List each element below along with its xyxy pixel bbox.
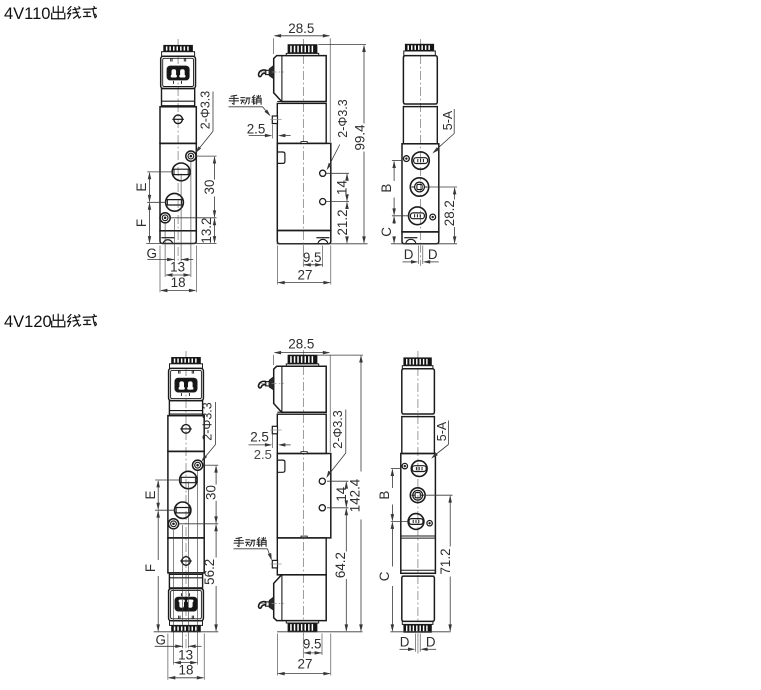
svg-text:B: B (379, 184, 394, 193)
svg-text:9.5: 9.5 (303, 250, 322, 265)
svg-text:4V110: 4V110 (4, 5, 51, 23)
svg-text:30: 30 (202, 180, 217, 195)
svg-text:2.5: 2.5 (250, 430, 269, 445)
svg-text:27: 27 (298, 656, 313, 671)
svg-text:F: F (134, 219, 149, 227)
svg-text:G: G (155, 633, 165, 648)
svg-text:14: 14 (334, 180, 349, 195)
svg-text:C: C (379, 227, 394, 237)
svg-text:D: D (426, 635, 436, 650)
svg-text:56.2: 56.2 (202, 559, 217, 585)
svg-text:30: 30 (204, 485, 219, 500)
svg-text:2-Φ3.3: 2-Φ3.3 (331, 410, 345, 449)
svg-text:142.4: 142.4 (348, 478, 363, 512)
svg-text:4V120: 4V120 (4, 313, 52, 331)
svg-text:99.4: 99.4 (352, 124, 367, 151)
svg-text:2-Φ3.3: 2-Φ3.3 (199, 91, 213, 130)
svg-text:21.2: 21.2 (335, 209, 350, 235)
svg-text:F: F (143, 564, 158, 572)
svg-text:9.5: 9.5 (303, 637, 322, 652)
svg-text:D: D (404, 247, 414, 262)
svg-text:E: E (143, 490, 158, 499)
svg-text:18: 18 (171, 275, 186, 290)
svg-text:5-A: 5-A (435, 421, 449, 441)
svg-text:28.5: 28.5 (288, 337, 314, 352)
svg-text:G: G (146, 246, 156, 261)
svg-text:13: 13 (178, 647, 193, 662)
svg-text:13: 13 (170, 260, 185, 275)
svg-text:28.5: 28.5 (288, 21, 314, 36)
svg-text:5-A: 5-A (441, 110, 455, 130)
svg-text:2-Φ3.3: 2-Φ3.3 (336, 99, 350, 138)
svg-text:E: E (134, 183, 149, 192)
svg-text:D: D (428, 247, 438, 262)
svg-text:2-Φ3.3: 2-Φ3.3 (201, 402, 215, 441)
svg-text:B: B (377, 491, 392, 500)
svg-text:C: C (377, 571, 392, 581)
svg-text:64.2: 64.2 (333, 552, 348, 578)
svg-text:28.2: 28.2 (442, 200, 457, 226)
svg-text:27: 27 (298, 268, 313, 283)
svg-text:18: 18 (179, 663, 194, 678)
svg-text:71.2: 71.2 (438, 548, 453, 574)
svg-text:13.2: 13.2 (199, 218, 214, 244)
svg-text:D: D (400, 635, 410, 650)
svg-text:2.5: 2.5 (247, 121, 266, 136)
svg-text:2.5: 2.5 (254, 447, 272, 462)
